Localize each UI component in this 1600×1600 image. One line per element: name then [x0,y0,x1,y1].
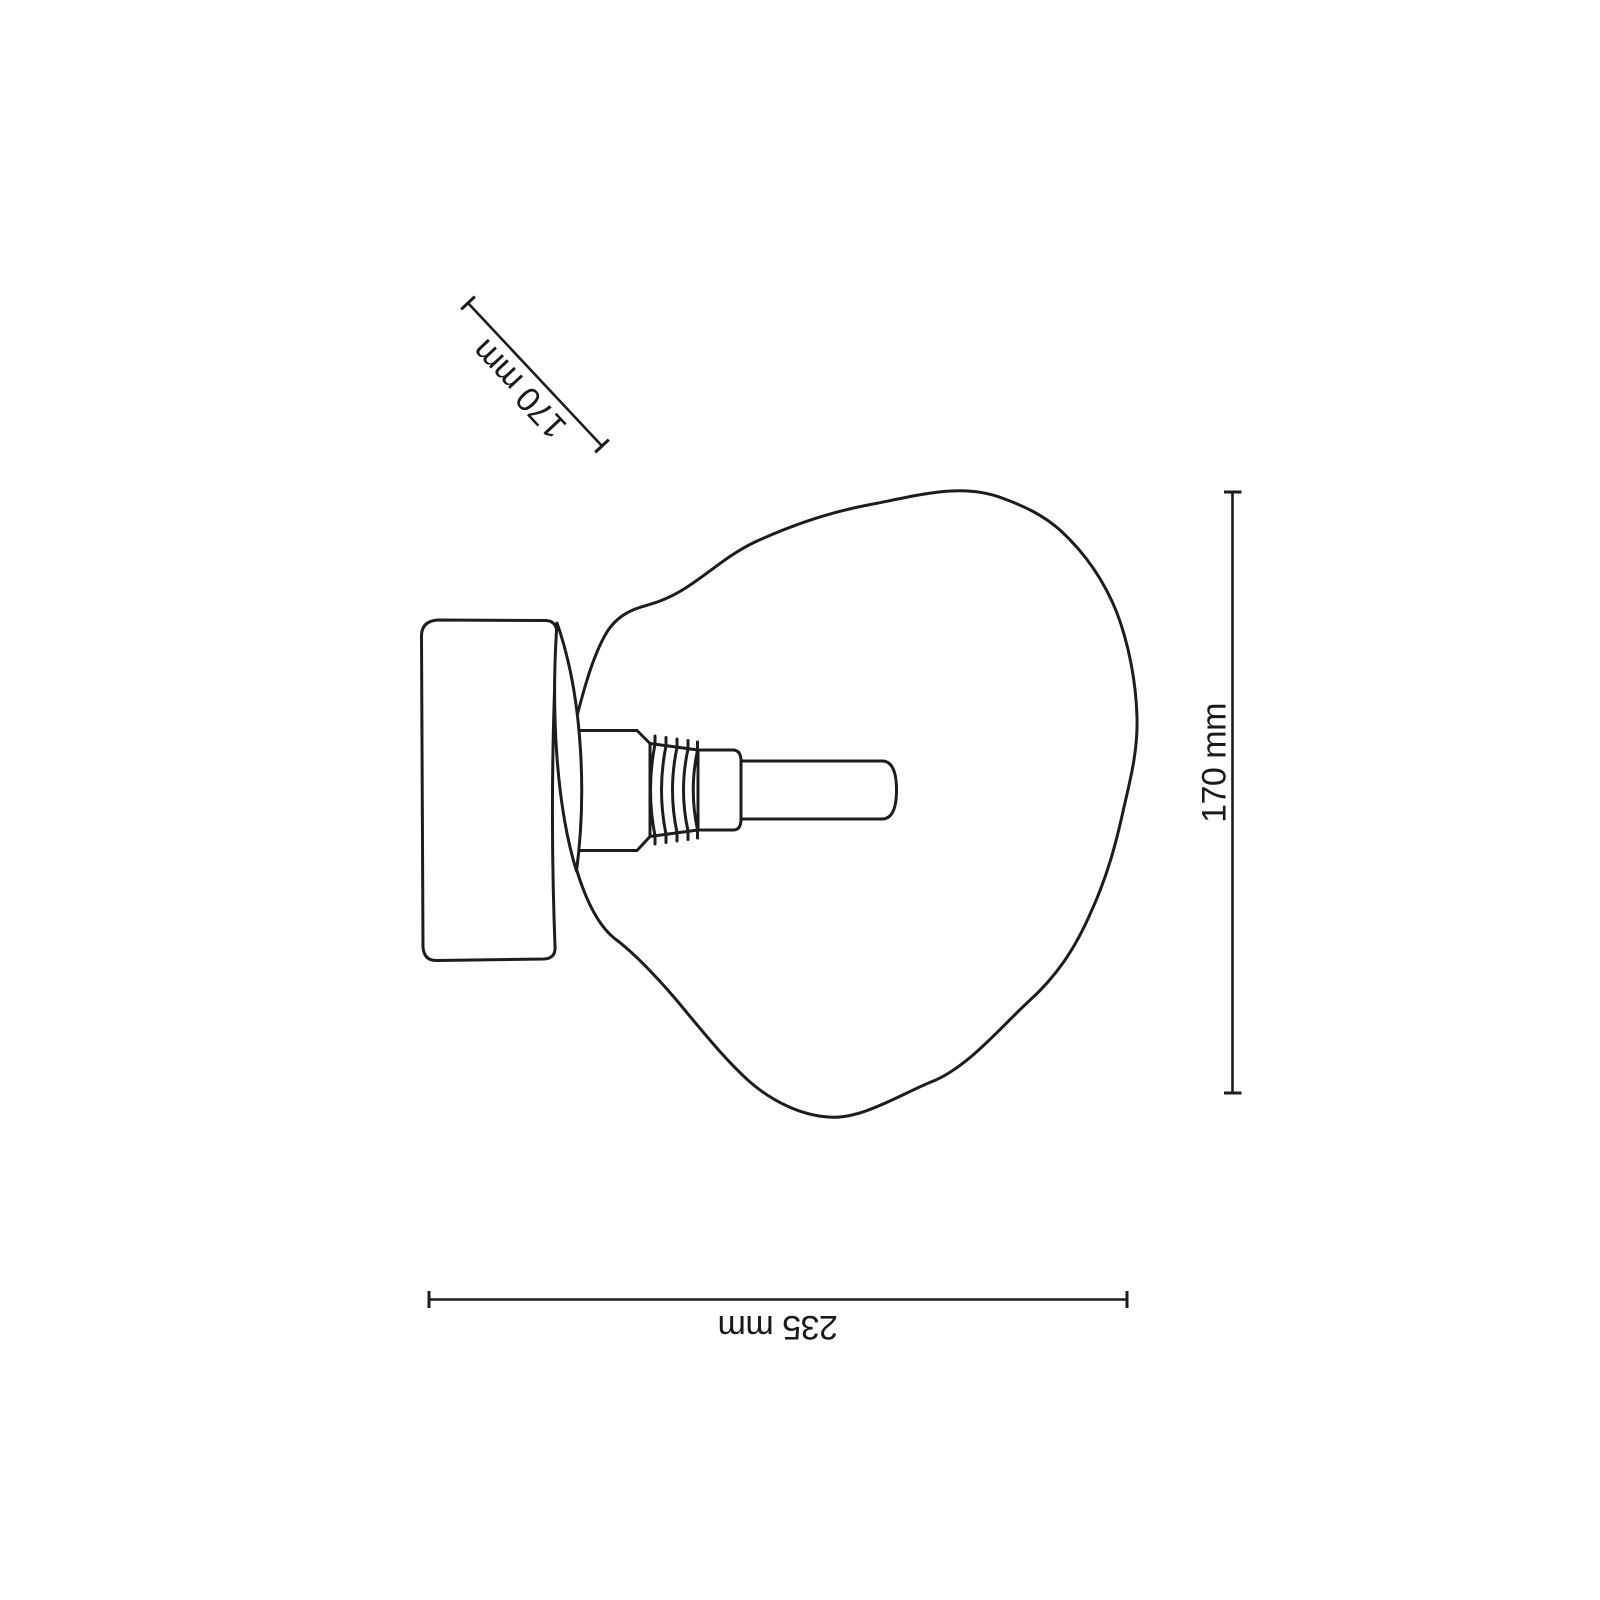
socket-collar [698,750,741,830]
dimension-diagonal: 170 mm [461,297,609,453]
dimension-diagram-page: 170 mm 170 mm 235 mm [0,0,1600,1600]
thread-arc [684,749,689,831]
thread-arc [662,746,667,834]
socket-assembly [577,731,897,851]
socket-threads [650,736,698,844]
thread-bottom-edge [650,830,698,837]
dimension-vertical: 170 mm [1196,492,1242,1093]
wall-plate-body [421,620,557,961]
thread-top-edge [650,744,698,751]
dimension-horizontal: 235 mm [429,1291,1127,1346]
socket-body [577,731,650,851]
wall-lamp-dimension-drawing: 170 mm 170 mm 235 mm [0,0,1600,1600]
dimension-diagonal-label: 170 mm [465,332,575,446]
thread-arc [673,747,678,832]
wall-plate [421,620,557,961]
glass-neck-lens [555,623,582,871]
stem-tube [741,761,897,819]
dimension-vertical-label: 170 mm [1196,703,1234,823]
dimension-horizontal-label: 235 mm [718,1308,838,1346]
